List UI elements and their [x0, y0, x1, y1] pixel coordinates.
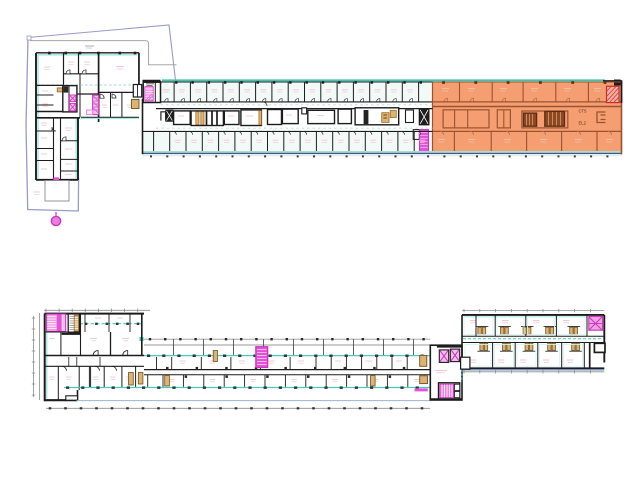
svg-text:CT5: CT5 [579, 109, 588, 114]
svg-text:EL2: EL2 [579, 121, 587, 126]
